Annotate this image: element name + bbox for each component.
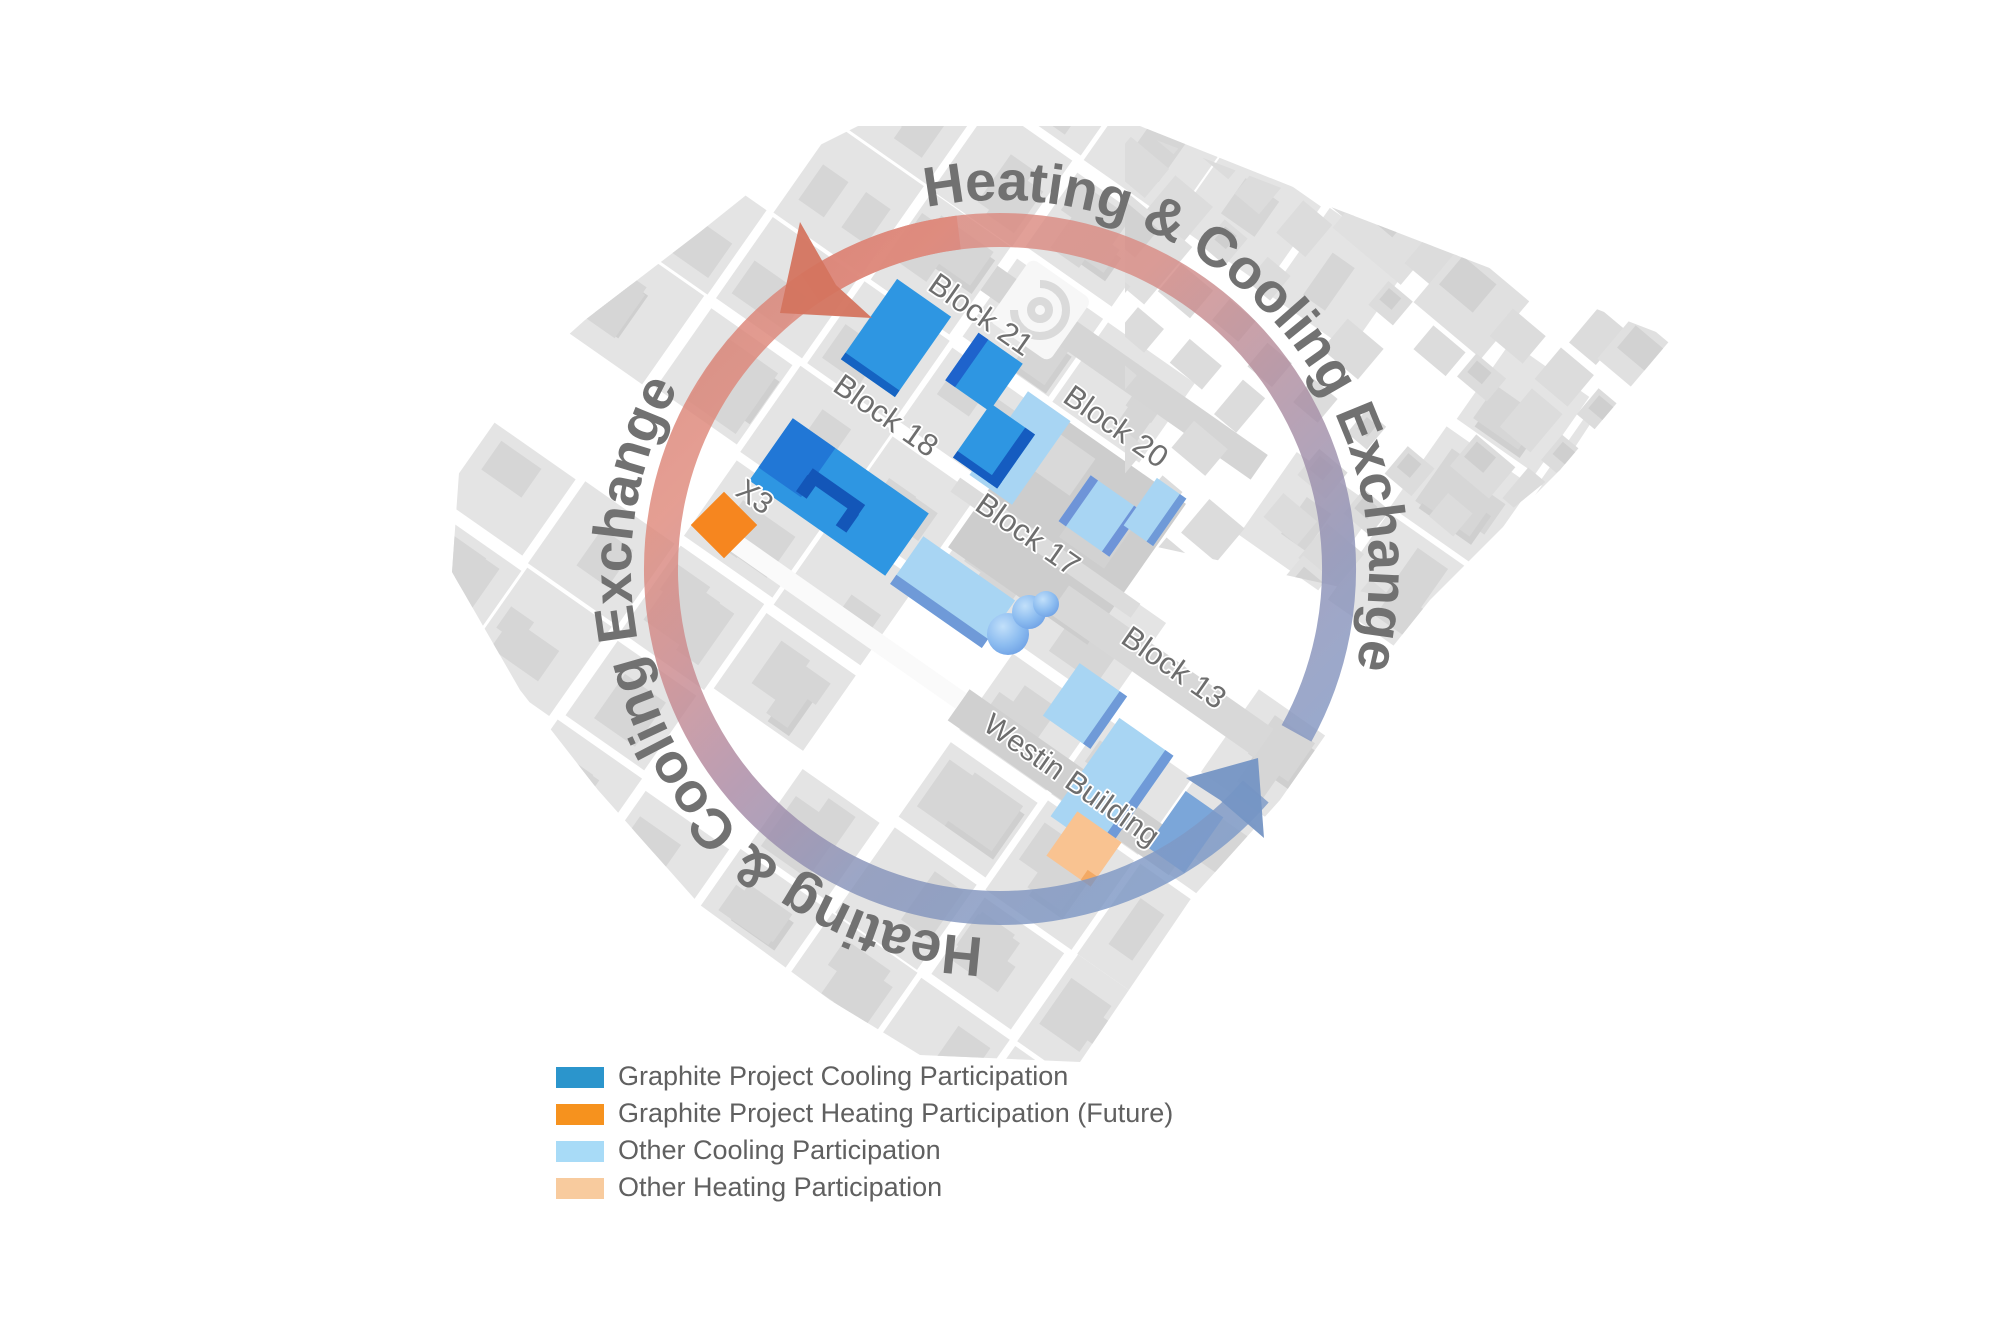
svg-text:Graphite Project Heating Parti: Graphite Project Heating Participation (… xyxy=(618,1098,1173,1128)
svg-text:Other Heating Participation: Other Heating Participation xyxy=(618,1172,942,1202)
svg-text:Graphite Project Cooling Parti: Graphite Project Cooling Participation xyxy=(618,1061,1068,1091)
svg-text:Other Cooling Participation: Other Cooling Participation xyxy=(618,1135,941,1165)
